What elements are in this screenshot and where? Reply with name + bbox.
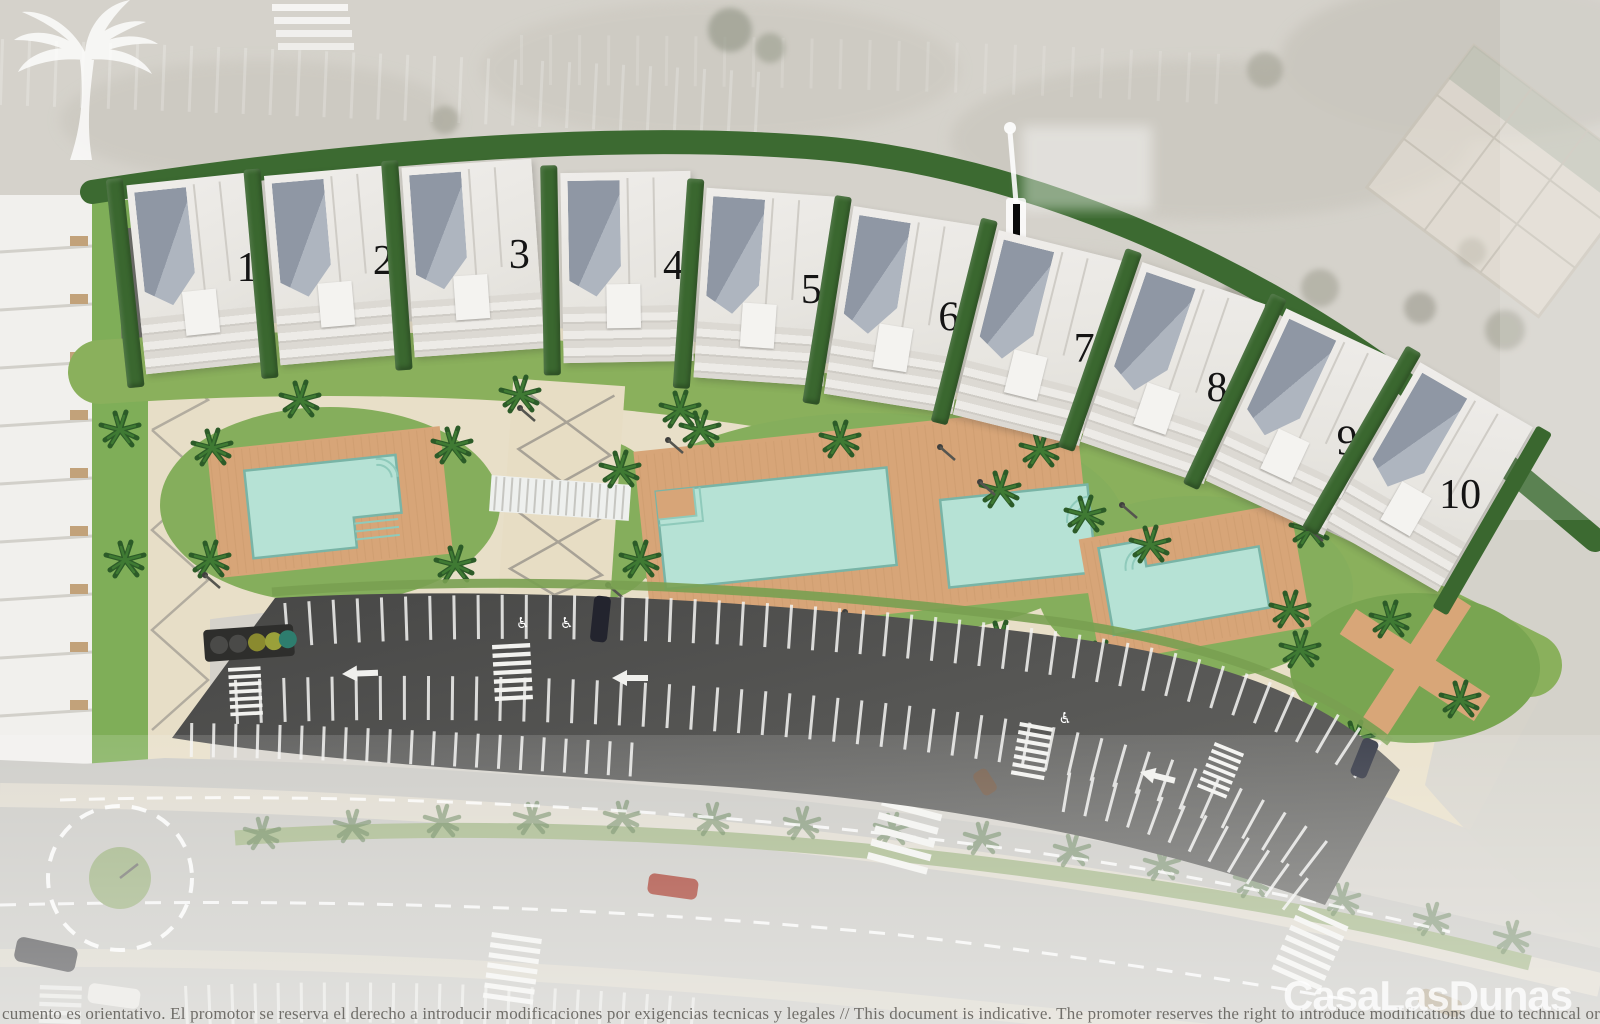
wheelchair-icon: ♿ <box>516 614 529 632</box>
building-number: 10 <box>1439 474 1481 516</box>
building-number: 3 <box>509 234 530 276</box>
brand-logo: CasaLasDunas <box>1283 972 1572 1020</box>
building-4: 4 <box>560 171 693 363</box>
site-plan: ♿ ♿ ♿ 1 2 3 4 <box>0 0 1600 1024</box>
palm-tree-logo-icon <box>0 0 170 166</box>
building-3: 3 <box>402 159 545 358</box>
waste-containers <box>203 624 298 662</box>
wheelchair-icon: ♿ <box>560 614 573 632</box>
roof-panel <box>134 187 198 308</box>
pool-deck-1 <box>207 426 453 578</box>
